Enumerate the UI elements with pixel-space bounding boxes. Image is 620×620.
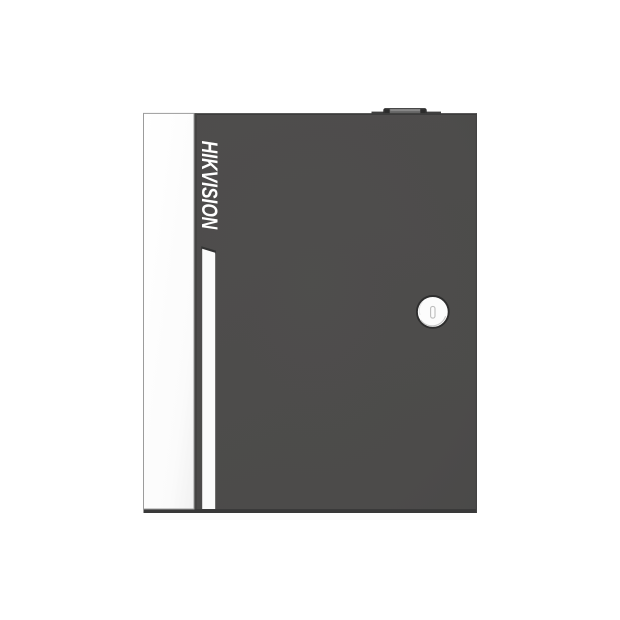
svg-text:HIKVISION: HIKVISION <box>197 141 222 230</box>
